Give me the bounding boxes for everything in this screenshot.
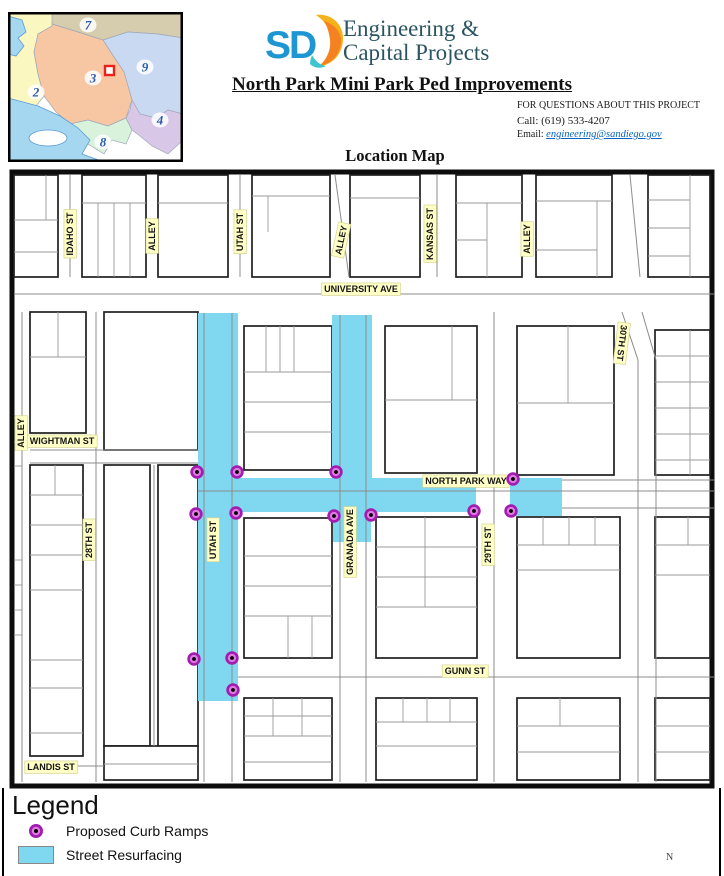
sd-logo-swoosh-icon: [302, 13, 344, 69]
curb-ramp-marker: [191, 509, 202, 520]
district-number: 9: [137, 60, 154, 75]
city-block: [104, 746, 198, 780]
street-label: GUNN ST: [442, 665, 488, 677]
street-label: UTAH ST: [207, 518, 219, 562]
svg-text:WIGHTMAN ST: WIGHTMAN ST: [30, 436, 95, 446]
svg-text:2: 2: [32, 85, 40, 100]
street-label: ALLEY: [15, 416, 27, 451]
street-label: NORTH PARK WAY: [423, 475, 510, 487]
city-block: [655, 698, 710, 780]
legend-item-resurfacing: Street Resurfacing: [18, 846, 182, 864]
contact-heading: FOR QUESTIONS ABOUT THIS PROJECT: [517, 99, 717, 114]
project-location-marker: [105, 66, 114, 75]
district-number: 4: [152, 113, 169, 128]
org-line1: Engineering &: [343, 17, 489, 41]
curb-ramp-marker: [508, 474, 519, 485]
contact-phone: Call: (619) 533-4207: [517, 114, 717, 129]
svg-text:ALLEY: ALLEY: [147, 221, 157, 251]
city-block: [244, 698, 332, 780]
street-label: IDAHO ST: [64, 210, 76, 259]
city-block: [536, 175, 612, 277]
svg-text:UNIVERSITY AVE: UNIVERSITY AVE: [324, 284, 398, 294]
street-label: 29TH ST: [482, 524, 494, 566]
legend-item-curb-ramps: Proposed Curb Ramps: [18, 822, 208, 840]
city-block: [158, 465, 198, 746]
page: { "header": { "logo_text": "SD", "org_li…: [0, 0, 724, 876]
inset-district-map: 237948: [8, 12, 183, 162]
main-map: IDAHO STALLEYUTAH STALLEYKANSAS STALLEYU…: [0, 168, 724, 792]
curb-ramp-marker: [331, 467, 342, 478]
street-label: UNIVERSITY AVE: [322, 283, 401, 295]
curb-ramp-marker: [232, 467, 243, 478]
street-label: 28TH ST: [83, 519, 95, 561]
svg-text:8: 8: [100, 135, 107, 150]
city-block: [517, 326, 614, 475]
island-shape: [29, 130, 67, 146]
location-map-title: Location Map: [300, 146, 490, 166]
email-label: Email:: [517, 129, 544, 140]
legend-label: Proposed Curb Ramps: [66, 823, 208, 839]
legend: Legend Proposed Curb Ramps Street Resurf…: [0, 788, 724, 876]
city-block: [104, 465, 150, 746]
svg-text:ALLEY: ALLEY: [16, 418, 26, 448]
street-label: GRANADA AVE: [344, 507, 356, 578]
curb-ramp-marker: [469, 506, 480, 517]
city-block: [517, 517, 620, 658]
district-number: 8: [95, 135, 112, 150]
city-block: [385, 326, 477, 473]
district-number: 2: [28, 85, 45, 100]
org-name: Engineering & Capital Projects: [343, 17, 489, 65]
svg-text:LANDIS ST: LANDIS ST: [27, 762, 75, 772]
curb-ramp-marker: [192, 467, 203, 478]
svg-text:KANSAS ST: KANSAS ST: [425, 208, 435, 261]
city-block: [376, 698, 477, 780]
svg-text:IDAHO ST: IDAHO ST: [65, 212, 75, 256]
curb-ramp-marker: [329, 511, 340, 522]
curb-ramp-marker: [227, 653, 238, 664]
contact-block: FOR QUESTIONS ABOUT THIS PROJECT Call: (…: [517, 99, 717, 143]
svg-text:7: 7: [85, 18, 92, 33]
city-block: [655, 330, 710, 475]
street-label: KANSAS ST: [424, 205, 436, 263]
curb-ramp-legend-icon: [18, 822, 54, 840]
svg-text:ALLEY: ALLEY: [522, 224, 532, 254]
city-block: [517, 698, 620, 780]
street-label: UTAH ST: [234, 210, 246, 254]
street-label: ALLEY: [521, 222, 533, 257]
north-arrow-icon: N: [666, 852, 673, 863]
svg-text:3: 3: [89, 71, 97, 86]
email-link[interactable]: engineering@sandiego.gov: [546, 129, 662, 140]
svg-text:28TH ST: 28TH ST: [84, 521, 94, 558]
curb-ramp-marker: [228, 685, 239, 696]
svg-text:GRANADA AVE: GRANADA AVE: [345, 509, 355, 575]
street-label: WIGHTMAN ST: [27, 435, 97, 447]
city-block: [252, 175, 330, 277]
city-block: [648, 175, 710, 277]
svg-text:UTAH ST: UTAH ST: [208, 520, 218, 559]
svg-text:29TH ST: 29TH ST: [483, 526, 493, 563]
city-block: [350, 175, 420, 277]
district-number: 7: [80, 18, 97, 33]
city-block: [244, 326, 332, 470]
svg-text:GUNN ST: GUNN ST: [445, 666, 486, 676]
city-block: [30, 465, 83, 756]
city-block: [104, 312, 198, 450]
org-line2: Capital Projects: [343, 41, 489, 65]
curb-ramp-marker: [366, 510, 377, 521]
contact-email-row: Email: engineering@sandiego.gov: [517, 128, 717, 143]
city-block: [376, 517, 477, 658]
street-resurfacing-band: [510, 478, 562, 516]
svg-text:9: 9: [142, 60, 149, 75]
city-block: [456, 175, 522, 277]
resurfacing-legend-icon: [18, 846, 54, 864]
svg-text:4: 4: [156, 113, 164, 128]
legend-label: Street Resurfacing: [66, 847, 182, 863]
street-label: ALLEY: [146, 219, 158, 254]
project-title: North Park Mini Park Ped Improvements: [232, 74, 572, 96]
curb-ramp-marker: [506, 506, 517, 517]
legend-title: Legend: [12, 790, 99, 821]
city-block: [14, 175, 58, 277]
city-block: [655, 517, 710, 658]
svg-text:NORTH PARK WAY: NORTH PARK WAY: [425, 476, 507, 486]
curb-ramp-marker: [231, 508, 242, 519]
city-block: [158, 175, 228, 277]
district-number: 3: [85, 71, 102, 86]
curb-ramp-marker: [189, 654, 200, 665]
street-label: LANDIS ST: [25, 761, 78, 773]
svg-text:UTAH ST: UTAH ST: [235, 212, 245, 251]
